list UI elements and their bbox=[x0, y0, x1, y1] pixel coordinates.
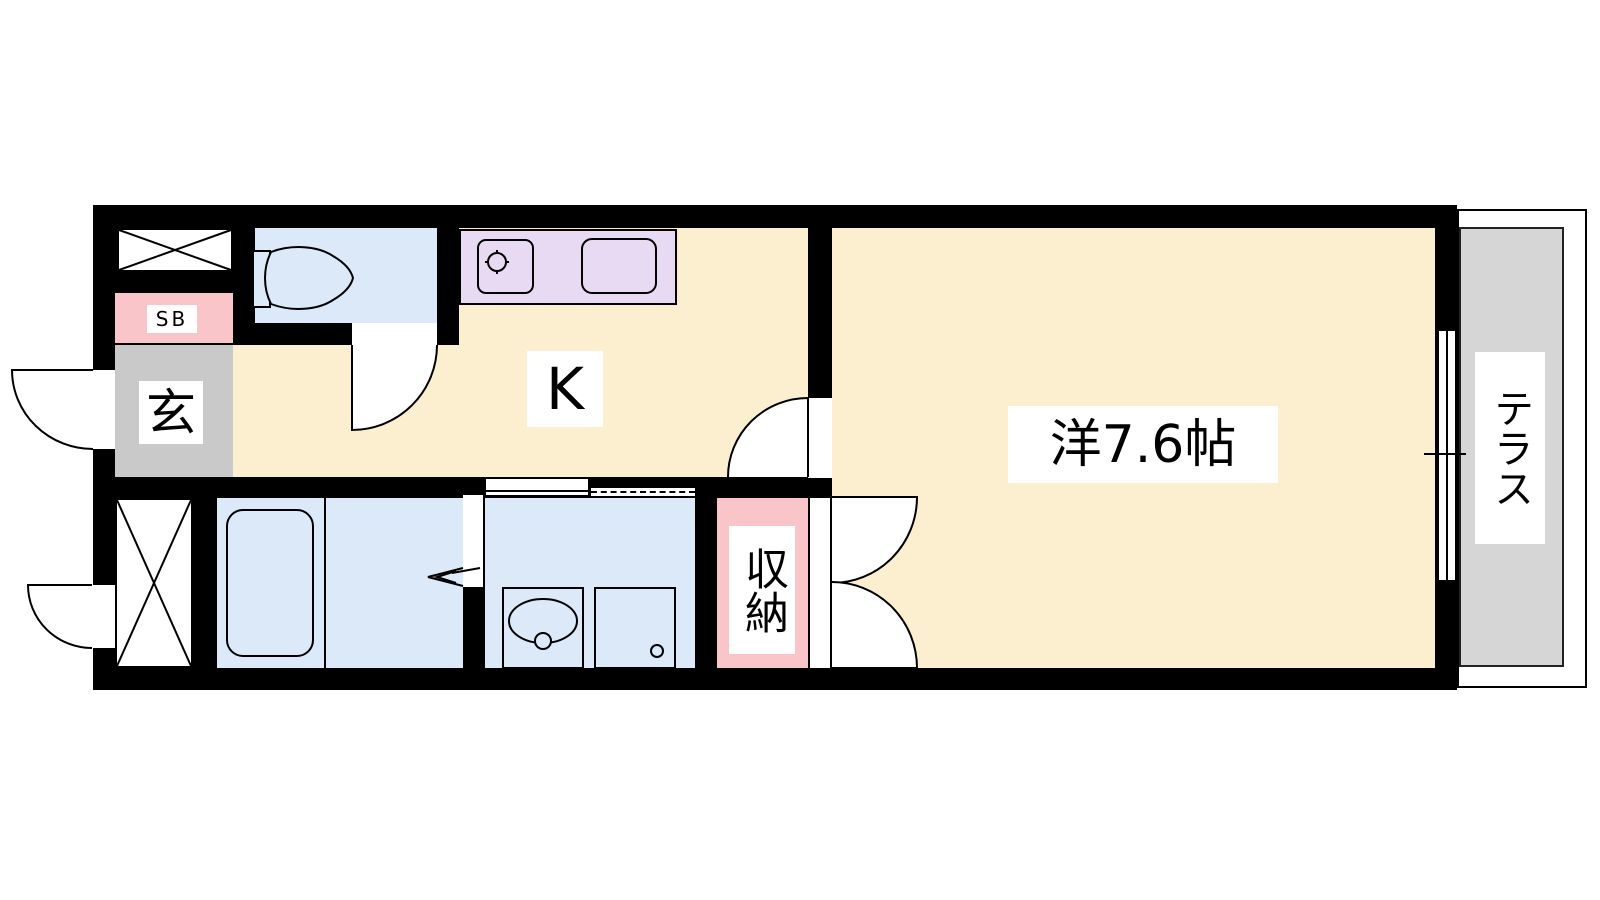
label-entrance: 玄 bbox=[139, 381, 203, 444]
opening-kitchen-room-door bbox=[808, 398, 832, 478]
kitchen-text: K bbox=[546, 360, 584, 418]
shoe-box-text: SB bbox=[156, 309, 188, 329]
label-kitchen: K bbox=[527, 351, 603, 427]
sliding-door-rail bbox=[486, 490, 588, 492]
room-toilet bbox=[255, 228, 437, 323]
kitchen-counter bbox=[459, 229, 677, 305]
wall-storage-bath bbox=[193, 498, 217, 668]
window-center-rail bbox=[1446, 331, 1448, 580]
opening-bathroom-door bbox=[463, 495, 483, 587]
wall-washroom-closet bbox=[695, 498, 717, 668]
entrance-text: 玄 bbox=[146, 388, 196, 438]
floorplan-canvas: SB 玄 K 洋7.6帖 収納 テラス bbox=[0, 0, 1600, 900]
sliding-door-panel-front bbox=[484, 477, 590, 497]
label-terrace: テラス bbox=[1475, 352, 1545, 544]
opening-entrance-door bbox=[93, 370, 115, 449]
terrace-text: テラス bbox=[1490, 388, 1530, 508]
label-closet: 収納 bbox=[729, 526, 795, 654]
western-room-text: 洋7.6帖 bbox=[1050, 419, 1237, 471]
storage-door-swing bbox=[28, 585, 92, 648]
sliding-door-panel-back bbox=[590, 487, 696, 497]
window-terrace bbox=[1437, 329, 1457, 582]
entrance-door-swing bbox=[12, 370, 93, 449]
outdoor-storage-box bbox=[115, 498, 193, 668]
label-shoe-box: SB bbox=[147, 305, 197, 333]
closet-text: 収納 bbox=[740, 546, 784, 634]
sliding-door-rail-dashed bbox=[591, 491, 695, 493]
opening-toilet-door bbox=[352, 323, 437, 345]
opening-storage-door bbox=[93, 585, 115, 648]
room-bathroom bbox=[217, 498, 463, 668]
meter-box bbox=[117, 228, 233, 272]
closet-door-panel bbox=[808, 498, 832, 668]
label-western-room: 洋7.6帖 bbox=[1008, 406, 1278, 483]
room-washroom bbox=[485, 498, 695, 668]
